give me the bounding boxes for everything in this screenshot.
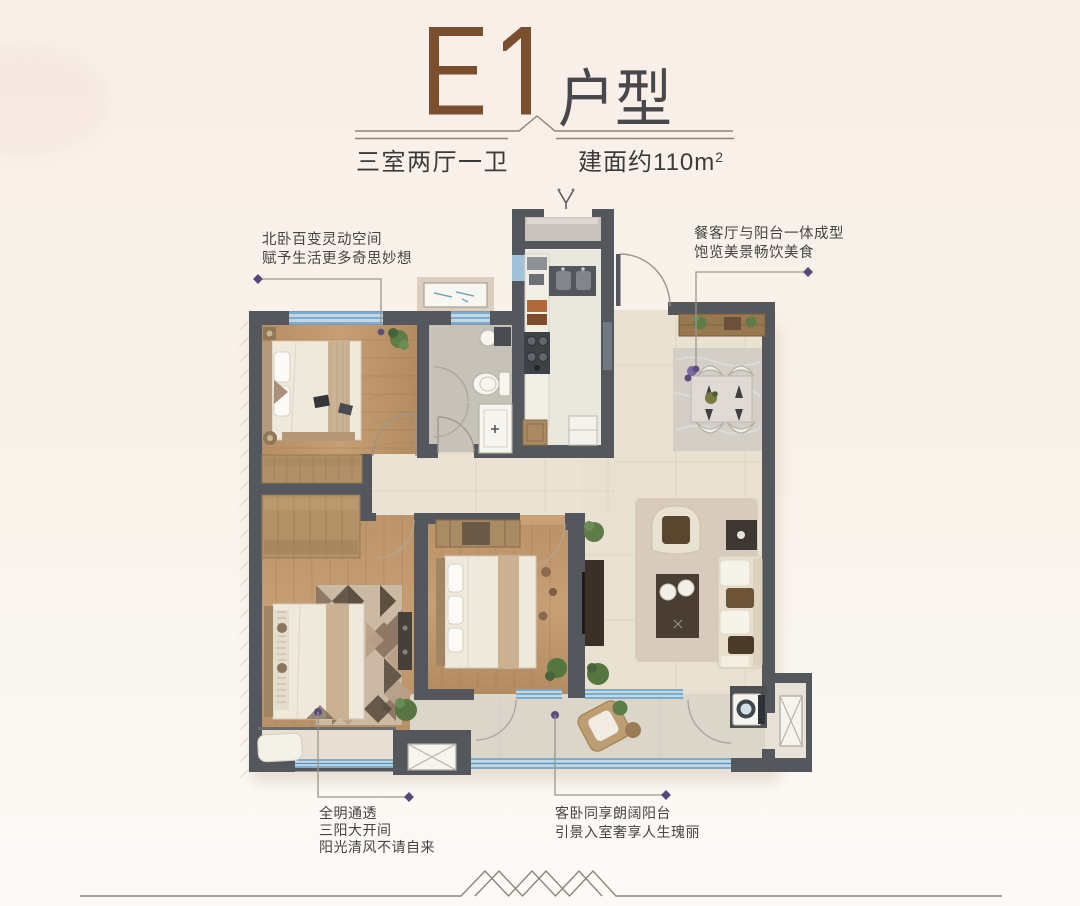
svg-text:建面约110m2: 建面约110m2: [578, 149, 724, 176]
svg-text:户型: 户型: [558, 65, 672, 135]
svg-text:餐客厅与阳台一体成型: 餐客厅与阳台一体成型: [694, 225, 844, 242]
svg-text:三阳大开间: 三阳大开间: [319, 822, 392, 838]
svg-text:北卧百变灵动空间: 北卧百变灵动空间: [262, 231, 382, 248]
svg-text:三室两厅一卫: 三室两厅一卫: [356, 149, 509, 176]
svg-text:阳光清风不请自来: 阳光清风不请自来: [319, 839, 435, 855]
svg-text:赋予生活更多奇思妙想: 赋予生活更多奇思妙想: [262, 250, 412, 267]
svg-text:饱览美景畅饮美食: 饱览美景畅饮美食: [694, 244, 814, 261]
svg-text:引景入室奢享人生瑰丽: 引景入室奢享人生瑰丽: [555, 824, 700, 840]
svg-text:客卧同享朗阔阳台: 客卧同享朗阔阳台: [555, 805, 671, 821]
svg-text:全明通透: 全明通透: [319, 805, 377, 821]
